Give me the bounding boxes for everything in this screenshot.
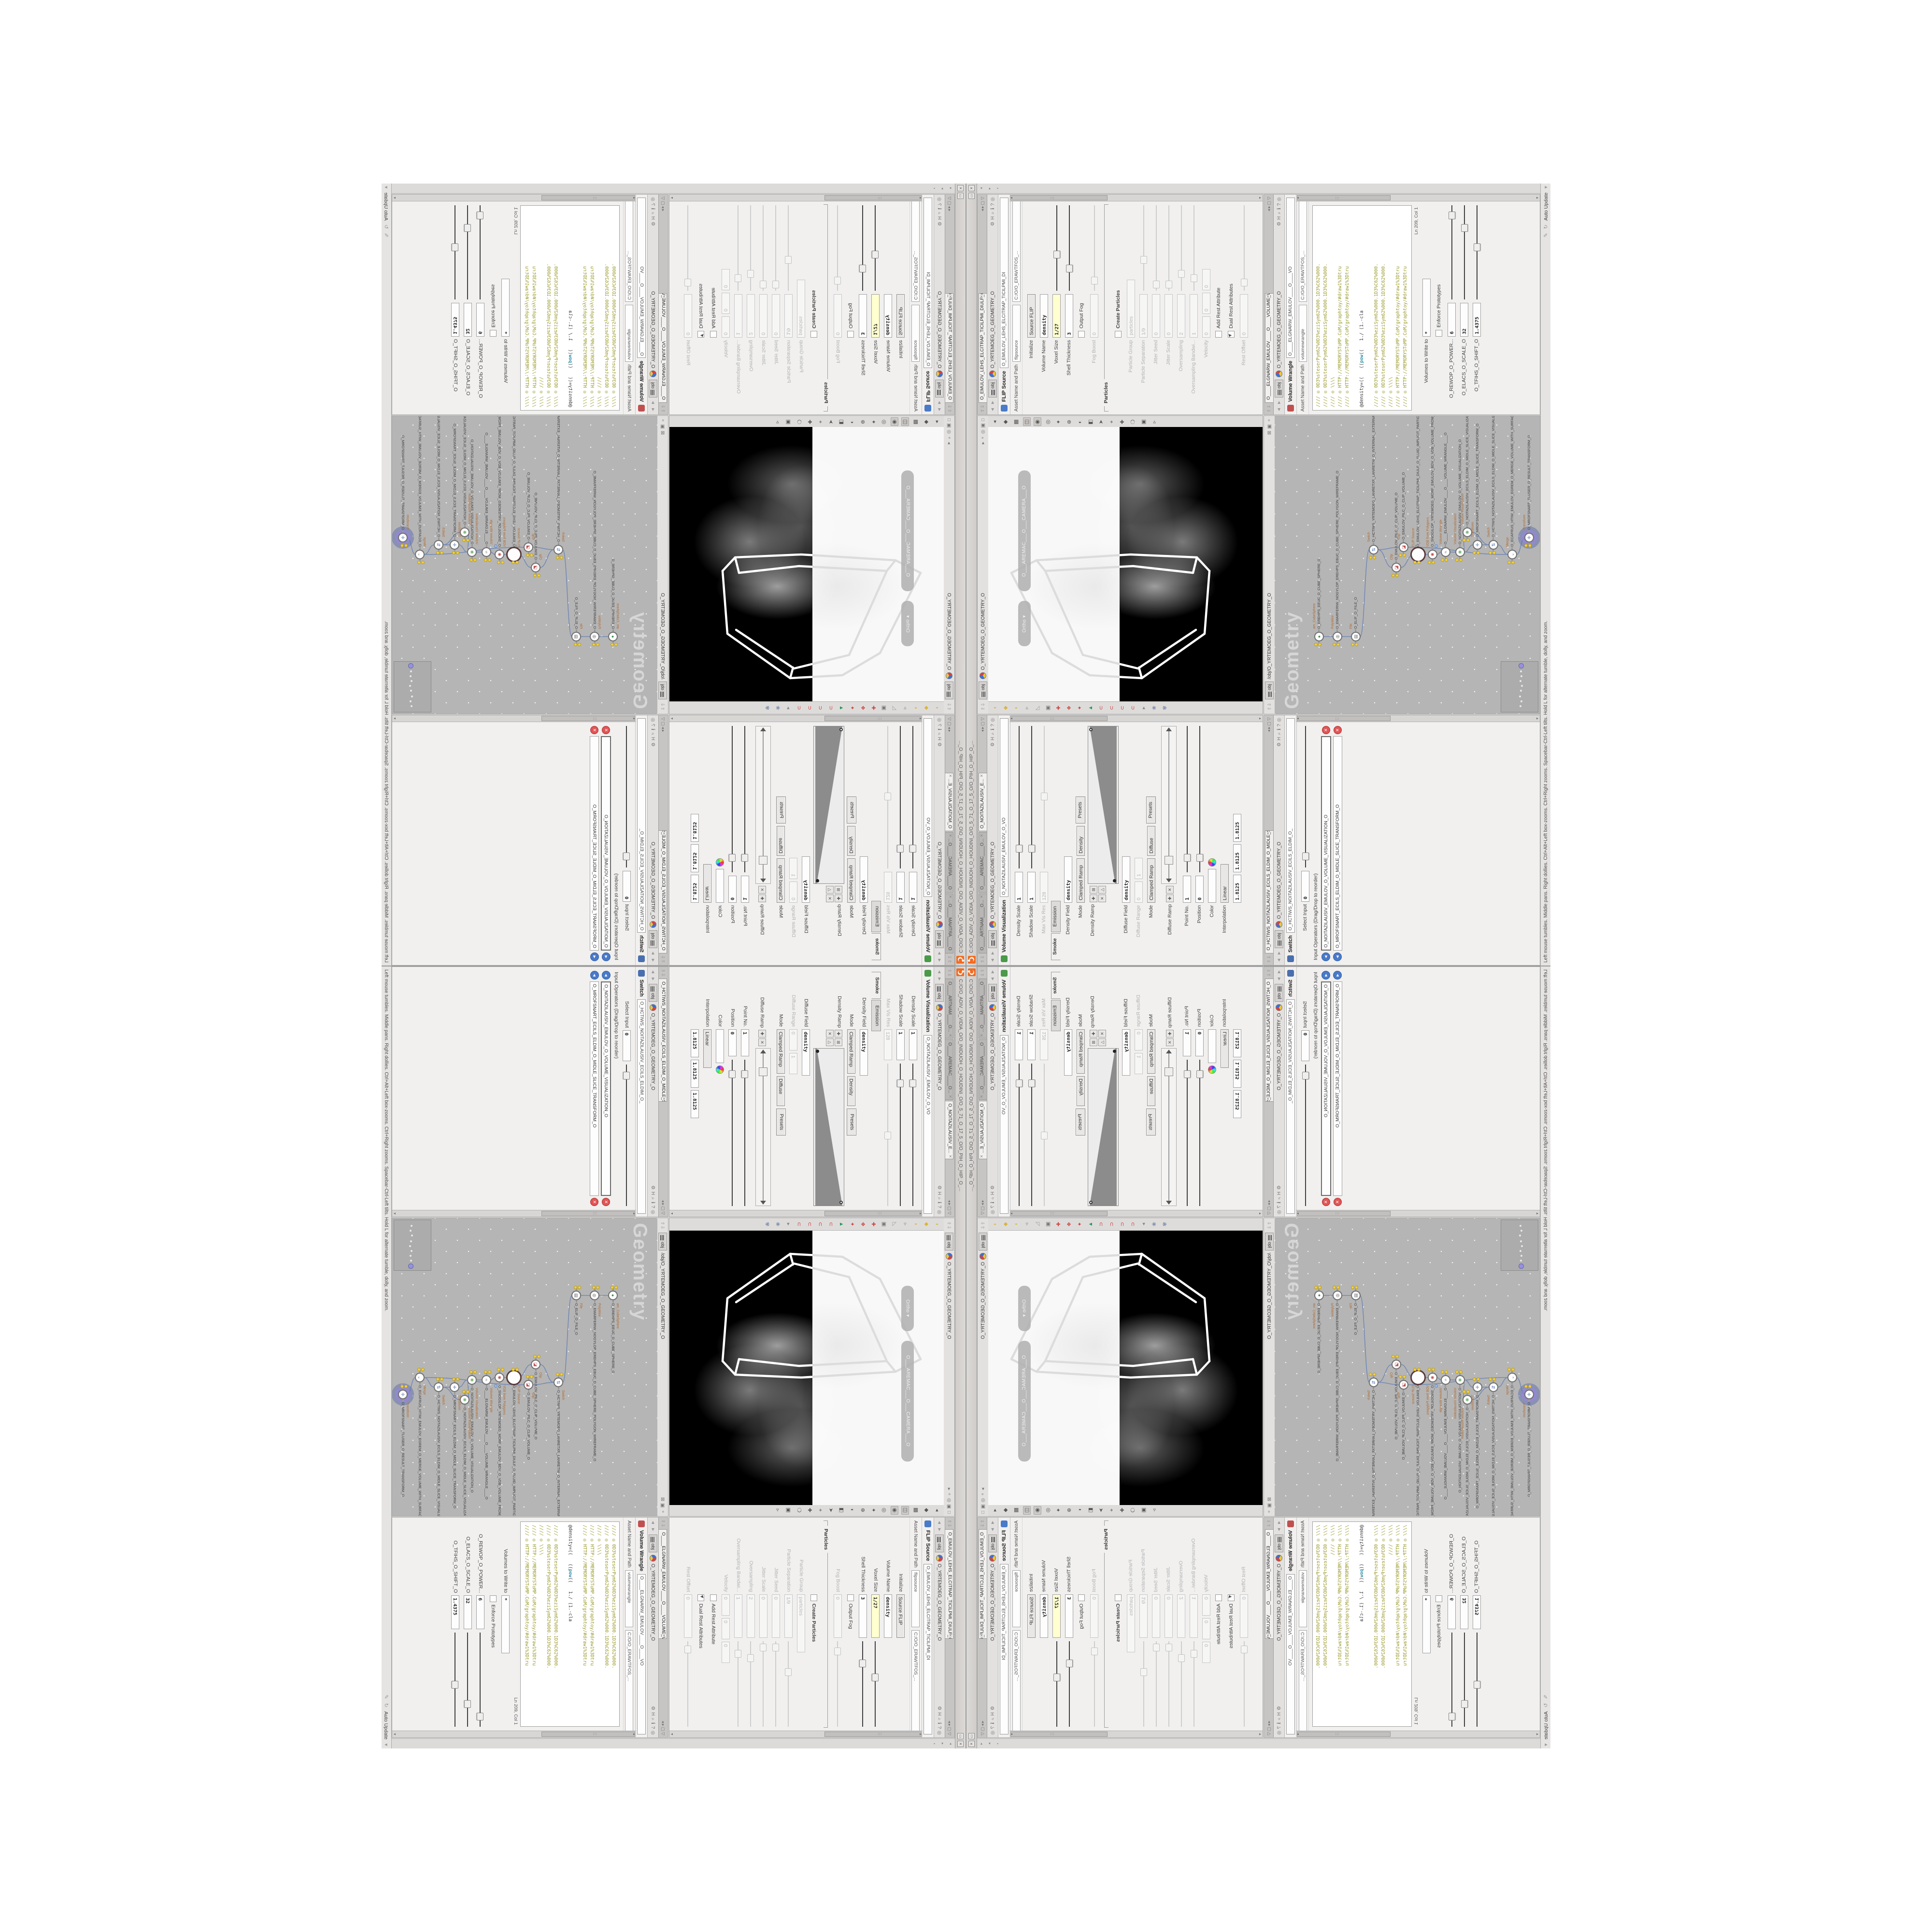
display-option-icon[interactable]: ✦ [1055, 418, 1063, 426]
param-field[interactable]: 0 [834, 1594, 842, 1638]
network-node[interactable]: ✱VDB from PolygonsO_SNOGILOP_YRTEMOEG_MO… [1428, 550, 1437, 559]
tool-icon[interactable]: ▸ [784, 704, 792, 712]
param-slider[interactable] [452, 204, 460, 300]
param-field[interactable]: 1/9 [785, 294, 793, 338]
param-field[interactable]: 1/27 [1052, 1594, 1061, 1638]
color-field[interactable] [1208, 869, 1216, 903]
network-node[interactable]: ⇅SwitchO_HCTIWS_YRTEMOEG_LANRETXE_LANRET… [1369, 545, 1378, 554]
pane-stow-arrows[interactable]: ⇧⇩ [979, 1519, 987, 1528]
param-field[interactable]: Source FLIP [1027, 1594, 1036, 1638]
viewport-header-icon[interactable]: ◎ [980, 430, 986, 434]
param-field[interactable]: Density [848, 826, 856, 856]
header-icon-⚙[interactable]: ⚙ [651, 1185, 656, 1190]
param-field[interactable]: 1/9 [785, 1594, 793, 1638]
node-name-field[interactable]: O____ELGNARW_EMULOV____O____VO [1286, 1574, 1295, 1734]
node-body[interactable]: ▤ [1351, 1291, 1361, 1300]
param-field[interactable]: density [1040, 294, 1048, 338]
param-field[interactable]: 0 [790, 1029, 798, 1051]
display-option-icon[interactable]: ◂ [991, 418, 999, 426]
pane-stow-arrows[interactable]: ⇧⇩ [1265, 404, 1273, 413]
checkbox-add-rest-attribute[interactable] [1215, 331, 1222, 338]
pane-stow-arrows[interactable]: ⇧⇩ [979, 968, 987, 978]
header-icon-?[interactable]: ? [1277, 724, 1282, 727]
node-flag-badge[interactable] [421, 561, 425, 564]
close-icon[interactable]: ✕ [1266, 832, 1270, 835]
node-name-field[interactable]: O_NOITAZILAUSIV_EMULOV_O_VO [923, 1035, 932, 1214]
viewport-path[interactable]: O_YRTEMOEG_O_GEOMETRY_O [947, 447, 952, 670]
param-field[interactable]: 0 [1202, 1642, 1210, 1663]
param-slider[interactable] [1177, 204, 1185, 292]
network-node[interactable]: ✛TransformO_MROFSNART_ECILS_ELDIM_O_MIDL… [450, 540, 459, 550]
node-body[interactable]: ◪ [1392, 1360, 1401, 1369]
view-mode-pill[interactable]: Ortho ▾ [901, 1286, 914, 1331]
header-icon-H[interactable]: H [1277, 216, 1282, 220]
node-name-field[interactable]: O_EMULOV_LEHS_ELCITRAP_TICILPMI_DI [923, 198, 932, 368]
display-option-icon[interactable]: ⌖ [1108, 418, 1116, 426]
scroll-up-icon[interactable]: ▲ [1010, 195, 1013, 201]
tool-icon[interactable]: ▹ [901, 704, 909, 712]
param-field[interactable]: 1 [897, 1029, 905, 1060]
header-icon-?[interactable]: ? [990, 1206, 995, 1208]
pane-tab[interactable]: O_EMULOV_LEHS_ELCITRAP_TICILPMI_DIULF_O_… [945, 1529, 953, 1638]
pane-control-icon[interactable]: ▽ [947, 1732, 952, 1735]
network-canvas[interactable]: Geometry●am_CubeSphereO_EREHPS_EBUC_D_CU… [392, 1218, 657, 1516]
param-slider[interactable] [1190, 1640, 1198, 1728]
pane-control-icon[interactable]: ▸ [980, 206, 985, 208]
nav-forward-icon[interactable]: ► [990, 400, 995, 405]
display-option-icon[interactable]: ◉ [891, 418, 898, 426]
display-option-icon[interactable]: ◂ [933, 1506, 941, 1515]
network-header-icon[interactable]: ▣ [1267, 1503, 1272, 1507]
node-flag-badge[interactable] [1477, 551, 1480, 554]
reorder-arrow-icon[interactable]: ◄ [602, 971, 611, 980]
slider-handle[interactable] [897, 1080, 904, 1087]
pane-tab[interactable]: O_NOITAZILAUSIV_E...✕ [979, 773, 987, 832]
viewport-header-icon[interactable]: ⚬ [980, 1492, 986, 1496]
param-field[interactable]: 1 [897, 872, 905, 903]
stow-arrow-icon[interactable]: ◂ [979, 1743, 983, 1745]
node-flag-badge[interactable] [578, 1286, 581, 1289]
ramp-button-△[interactable]: △ [826, 886, 834, 894]
param-field[interactable]: density [860, 856, 868, 903]
node-body[interactable]: ❋ [467, 547, 477, 557]
nav-back-icon[interactable]: ◄ [1277, 969, 1282, 974]
param-field[interactable]: 1.8125 [691, 814, 699, 842]
param-slider[interactable] [1460, 204, 1468, 300]
scroll-down-icon[interactable]: ▼ [393, 1210, 396, 1217]
param-field[interactable]: 1 [790, 1053, 798, 1074]
stow-arrow-icon[interactable]: ⇧ [947, 707, 952, 710]
slider-handle[interactable] [1241, 1646, 1248, 1653]
tool-icon[interactable]: ▹ [1023, 1220, 1031, 1229]
pane-control-icon[interactable]: ▸ [947, 1203, 952, 1206]
stow-arrow-icon[interactable]: ⇧ [660, 1520, 666, 1523]
header-icon-◎[interactable]: ◎ [990, 197, 995, 201]
param-field[interactable]: 1.8125 [691, 875, 699, 903]
header-icon-⌕[interactable]: ⌕ [990, 732, 995, 735]
stow-arrow-icon[interactable]: ⇧ [1267, 707, 1272, 710]
close-icon[interactable]: ✕ [980, 295, 984, 298]
ramp-handle-start[interactable] [1113, 1050, 1116, 1053]
param-field[interactable]: 128 [1040, 872, 1048, 903]
pane-control-icon[interactable]: ◂ [660, 209, 666, 212]
network-node[interactable]: ◍PolyWireO_EMARFERIW_NOGYLOP_EREHPS_EBUC… [590, 632, 599, 641]
node-body[interactable]: ⇅ [554, 1378, 563, 1387]
display-option-icon[interactable]: ⊕ [859, 1506, 867, 1515]
node-flag-badge[interactable] [1373, 556, 1376, 559]
presets-button[interactable]: Presets [847, 1108, 856, 1136]
param-field[interactable]: 1.4375 [1473, 303, 1481, 337]
node-body[interactable]: ◪ [531, 563, 540, 572]
header-icon-?[interactable]: ? [990, 724, 995, 727]
display-option-icon[interactable]: ◎ [1044, 1506, 1052, 1515]
tool-icon[interactable]: ✦ [848, 1220, 856, 1229]
close-icon[interactable]: ✕ [662, 1634, 666, 1637]
node-flag-badge[interactable] [1441, 558, 1444, 562]
pane-scrollbar[interactable]: ▲▼ [392, 1731, 636, 1737]
tool-icon[interactable]: ✾ [763, 1220, 771, 1229]
checkbox-add-rest-attribute[interactable] [710, 331, 717, 338]
stow-arrow-icon[interactable]: ⇧ [660, 959, 666, 963]
param-slider[interactable] [872, 1640, 880, 1728]
param-field[interactable]: 3 [859, 294, 867, 338]
close-icon[interactable]: ✕ [662, 295, 666, 298]
checkbox-enforce-prototypes[interactable] [1435, 1595, 1442, 1602]
node-body[interactable] [506, 547, 522, 562]
network-node[interactable]: ❋Volume VisualizationO_NOITAZILAUSIV_ECI… [1463, 1395, 1472, 1405]
pane-stow-arrows[interactable]: ⇧⇩ [980, 702, 986, 711]
viewport-header-icon[interactable]: ▸ [980, 442, 986, 444]
param-field[interactable]: Density [848, 1076, 856, 1106]
header-icon-?[interactable]: ? [990, 1726, 995, 1729]
stow-arrow-icon[interactable]: ⇧ [660, 707, 666, 710]
vex-code-editor[interactable]: //// ◎ 0D3%steserPym62%0D3%eziSym62%000.… [520, 205, 620, 411]
pane-tab[interactable]: O____AREMAC____O...✕ [979, 832, 987, 893]
node-flag-badge[interactable] [1336, 643, 1340, 646]
param-field[interactable]: 128 [884, 1029, 893, 1060]
slider-handle[interactable] [748, 270, 754, 278]
param-field[interactable]: 0 [722, 293, 730, 314]
input-operator-name[interactable]: O_MROFSNART_ECILS_ELDIM_O_MIDLE_SLICE_TR… [1333, 981, 1342, 1196]
header-icon-?[interactable]: ? [937, 724, 942, 727]
pane-control-icon[interactable]: ◂ [947, 1200, 952, 1203]
tool-icon[interactable]: ⊂ [1097, 1220, 1105, 1229]
param-slider[interactable] [1165, 1640, 1173, 1728]
param-field[interactable]: Source FLIP [1027, 294, 1036, 338]
node-flag-badge[interactable] [611, 1286, 614, 1289]
param-slider[interactable] [785, 1640, 793, 1728]
ramp-track[interactable] [1161, 726, 1177, 884]
stow-arrow-icon[interactable]: ▸ [940, 187, 945, 189]
param-field[interactable]: 0 [1240, 294, 1248, 338]
param-slider[interactable] [684, 204, 693, 292]
pane-stow-arrows[interactable]: ⇧⇩ [660, 702, 666, 711]
param-field[interactable]: Linear [704, 1029, 712, 1068]
slider-handle[interactable] [452, 243, 459, 251]
network-node[interactable]: ≈Volume WrangleO____ELGNARW_EMULOV____O_… [482, 547, 491, 557]
slider-handle[interactable] [1474, 243, 1480, 251]
display-option-icon[interactable]: ◧ [838, 1506, 845, 1515]
right-stowbar[interactable]: ◂ ▸ ▪ [392, 184, 955, 194]
tool-icon[interactable]: ⊂ [795, 704, 803, 712]
node-flag-badge[interactable] [537, 1355, 540, 1358]
node-flag-badge[interactable] [1413, 561, 1417, 564]
node-flag-badge[interactable] [1511, 1368, 1515, 1371]
tool-icon[interactable]: ⊂ [816, 1220, 824, 1229]
stow-arrow-icon[interactable]: ⇩ [1266, 1524, 1272, 1528]
header-icon-⌕[interactable]: ⌕ [937, 212, 942, 214]
slider-handle[interactable] [1178, 270, 1185, 278]
pane-tab[interactable]: O____ELGNARW_EMULOV____O____VOLUME_WRANG… [1265, 293, 1273, 402]
node-flag-badge[interactable] [421, 1368, 425, 1371]
nav-forward-icon[interactable]: ► [990, 951, 995, 955]
network-node[interactable]: FLIP SourceO_EMULOV_LEHS_ELCITRAP_TICILP… [1413, 1373, 1426, 1385]
param-field[interactable]: 0 [1240, 1594, 1248, 1638]
param-slider[interactable] [1240, 204, 1248, 292]
pane-scrollbar[interactable]: ▲▼ [1009, 195, 1263, 201]
slider-handle[interactable] [1302, 852, 1309, 860]
ramp-flag-left[interactable] [760, 1050, 766, 1053]
color-wheel-icon[interactable] [716, 858, 724, 867]
ramp-handle-end[interactable] [839, 728, 843, 731]
scroll-down-icon[interactable]: ▼ [670, 1731, 673, 1737]
param-field[interactable]: 1 [790, 858, 798, 879]
header-icon-◎[interactable]: ◎ [990, 1731, 995, 1735]
network-chip[interactable]: obj [1265, 682, 1274, 699]
network-node[interactable]: ⇅SwitchO_HCTIWS_NOITAZILAUSIV_ECILS_ELDI… [434, 1382, 443, 1392]
refresh-icon[interactable]: ↻ [1543, 225, 1549, 229]
header-icon-ℹ[interactable]: ℹ [651, 1722, 656, 1724]
header-icon-⌕[interactable]: ⌕ [651, 1197, 656, 1200]
param-field[interactable]: density [1064, 856, 1072, 903]
viewport-header-icon[interactable]: ⚬ [980, 436, 986, 440]
display-option-icon[interactable]: ◆ [923, 1506, 930, 1515]
stow-arrow-icon[interactable]: ⇩ [1266, 973, 1272, 977]
scroll-up-icon[interactable]: ▲ [1010, 715, 1013, 722]
folder-tab-smoke[interactable]: Smoke [1051, 972, 1061, 999]
param-field[interactable]: 0 [722, 1618, 730, 1639]
param-field[interactable]: 0 [1165, 294, 1173, 338]
tool-icon[interactable]: ◆ [923, 1220, 930, 1229]
slider-handle[interactable] [1461, 224, 1468, 232]
param-slider[interactable] [897, 725, 905, 869]
stow-arrow-icon[interactable]: ⇧ [947, 959, 952, 963]
param-slider[interactable] [1027, 725, 1036, 869]
scroll-up-icon[interactable]: ▲ [632, 195, 636, 201]
pane-control-icon[interactable]: ▽ [1266, 1732, 1272, 1735]
ramp-gradient[interactable] [813, 1048, 844, 1206]
node-body[interactable]: ❋ [1455, 1375, 1465, 1385]
node-flag-badge[interactable] [404, 1385, 408, 1388]
nav-back-icon[interactable]: ◄ [1277, 407, 1282, 412]
node-flag-badge[interactable] [1369, 556, 1372, 559]
ramp-button-✕[interactable]: ✕ [826, 895, 834, 902]
network-node[interactable]: ▤FileO_ELIF_O_FILE_O [1351, 1291, 1361, 1300]
header-icon-⌕[interactable]: ⌕ [651, 1718, 656, 1720]
header-icon-⚙[interactable]: ⚙ [651, 222, 656, 226]
slider-handle[interactable] [1184, 854, 1191, 862]
close-icon[interactable]: ✕ [980, 895, 984, 898]
pane-control-icon[interactable]: ▽ [980, 1211, 985, 1215]
close-icon[interactable]: ✕ [948, 1095, 952, 1098]
slider-handle[interactable] [835, 277, 841, 284]
node-flag-badge[interactable] [1507, 561, 1511, 564]
header-icon-◎[interactable]: ◎ [651, 718, 656, 722]
pane-control-icon[interactable]: ▢ [947, 201, 952, 205]
asset-path-field[interactable]: C:/O/O_ERAWTFOS_... [1012, 198, 1021, 302]
node-body[interactable]: ✛ [1524, 1390, 1534, 1399]
stow-arrow-icon[interactable]: ⇩ [980, 973, 985, 977]
param-field[interactable]: 0 [760, 294, 768, 338]
stow-arrow-icon[interactable]: ⇩ [660, 703, 666, 707]
nav-forward-icon[interactable]: ► [651, 400, 656, 405]
display-option-icon[interactable]: ◐ [1076, 418, 1084, 426]
ramp-flag-right[interactable] [760, 727, 766, 731]
network-chip[interactable]: obj [649, 1534, 657, 1552]
presets-button[interactable]: Presets [1146, 1108, 1156, 1136]
node-flag-badge[interactable] [1466, 1390, 1470, 1393]
ramp-button-⊞[interactable]: ⊞ [1090, 1038, 1097, 1046]
param-slider[interactable] [1139, 1640, 1148, 1728]
display-option-icon[interactable]: ⌖ [1108, 1506, 1116, 1515]
node-flag-badge[interactable] [1369, 1373, 1372, 1376]
node-body[interactable]: ◪ [524, 1380, 533, 1390]
stow-arrow-icon[interactable]: ⇧ [1266, 409, 1272, 412]
network-header-icon[interactable]: ⚬ [1267, 418, 1272, 422]
input-operator-name[interactable]: O_MROFSNART_ECILS_ELDIM_O_MIDLE_SLICE_TR… [590, 736, 599, 951]
viewport-header-icon[interactable]: ◎ [980, 1498, 986, 1503]
network-node[interactable]: ●am_CubeSphereO_EREHPS_EBUC_D_CUBE_SPHER… [1314, 1291, 1324, 1300]
network-canvas[interactable]: Geometry●am_CubeSphereO_EREHPS_EBUC_D_CU… [392, 416, 657, 714]
slider-handle[interactable] [1241, 279, 1248, 286]
header-icon-H[interactable]: H [990, 1712, 995, 1716]
param-slider[interactable] [772, 1640, 781, 1728]
brush-icon[interactable]: ✎ [1543, 233, 1549, 237]
header-icon-H[interactable]: H [1277, 737, 1282, 740]
tool-icon[interactable]: ⊂ [1129, 1220, 1137, 1229]
node-flag-badge[interactable] [511, 1368, 515, 1371]
slider-handle[interactable] [729, 854, 736, 862]
close-icon[interactable]: ✕ [948, 1634, 952, 1637]
header-icon-⚙[interactable]: ⚙ [937, 742, 942, 747]
ramp-handle-end[interactable] [1089, 1201, 1093, 1204]
param-field[interactable]: 32 [464, 1595, 472, 1629]
slider-handle[interactable] [835, 1648, 841, 1655]
param-field[interactable]: 1 [1015, 872, 1023, 903]
pane-tab[interactable]: O_HCTIWS_NOITAZILAUSIV_ECILS_ELDIM_O_MID… [659, 979, 667, 1102]
param-group-label[interactable]: Particles [1101, 1520, 1111, 1728]
asset-path-field[interactable]: C:/O/O_ERAWTFOS_... [1299, 198, 1307, 302]
ramp-button-△[interactable]: △ [826, 1038, 834, 1046]
close-icon[interactable]: ✕ [948, 1155, 952, 1158]
param-field[interactable]: 1/9 [1139, 1594, 1148, 1638]
display-option-icon[interactable]: ▣ [784, 1506, 792, 1515]
refresh-icon[interactable]: ↻ [383, 225, 389, 229]
folder-tab-emission[interactable]: Emission [871, 901, 881, 932]
close-icon[interactable]: ✕ [980, 1155, 984, 1158]
node-body[interactable]: ✛ [398, 533, 408, 542]
param-slider[interactable] [1195, 725, 1204, 873]
network-node[interactable]: ❋Volume VisualizationO_NOITAZILAUSIV_EMU… [1455, 547, 1465, 557]
param-field[interactable]: density [802, 1029, 810, 1076]
param-field[interactable]: * [1422, 1595, 1431, 1653]
network-chip[interactable]: obj [1275, 1534, 1283, 1552]
checkbox-dual-rest-attributes[interactable] [697, 1594, 704, 1601]
pane-stow-arrows[interactable]: ⇧⇩ [659, 968, 667, 978]
header-icon-ℹ[interactable]: ℹ [1277, 208, 1282, 210]
param-slider[interactable] [785, 204, 793, 292]
pane-control-icon[interactable]: ▢ [660, 1207, 666, 1211]
scrollbar-thumb[interactable] [541, 195, 635, 200]
node-flag-badge[interactable] [1477, 1378, 1480, 1381]
tool-icon[interactable]: ⊂ [806, 704, 813, 712]
node-body[interactable]: ✱ [1428, 1373, 1437, 1382]
ramp-handle[interactable] [1165, 856, 1173, 865]
header-icon-⌕[interactable]: ⌕ [651, 212, 656, 214]
param-field[interactable]: 2 [747, 1594, 755, 1638]
camera-menu-pill[interactable]: O___AREMAC___O___CAMERA___O [901, 470, 914, 591]
pane-control-icon[interactable]: ▸ [980, 1724, 985, 1726]
network-node[interactable]: ◍PolyWireO_EMARFERIW_NOGYLOP_EREHPS_EBUC… [1333, 1291, 1342, 1300]
node-flag-badge[interactable] [1395, 1355, 1399, 1358]
node-flag-badge[interactable] [1492, 1378, 1496, 1381]
scrollbar-thumb[interactable] [1297, 1732, 1391, 1737]
display-option-icon[interactable]: ◎ [1044, 418, 1052, 426]
pane-control-icon[interactable]: ▸ [660, 206, 666, 208]
scrollbar-thumb[interactable] [1297, 1211, 1391, 1216]
ramp-track[interactable] [1161, 1048, 1177, 1206]
scroll-up-icon[interactable]: ▲ [919, 1731, 922, 1737]
param-field[interactable]: 0 [790, 881, 798, 903]
param-field[interactable]: particles [1127, 280, 1135, 338]
stow-arrow-icon[interactable]: ⇧ [1266, 969, 1272, 973]
param-slider[interactable] [1065, 1640, 1073, 1728]
param-field[interactable]: 1 [1183, 1029, 1191, 1056]
checkbox-enforce-prototypes[interactable] [490, 330, 497, 337]
network-chip[interactable]: obj [945, 1233, 953, 1250]
display-option-icon[interactable]: ◉ [891, 1506, 898, 1515]
pane-tab[interactable]: O____AREMAC____O...✕ [945, 832, 953, 893]
stow-arrow-icon[interactable]: ⇩ [980, 1226, 986, 1230]
header-icon-⚙[interactable]: ⚙ [1277, 222, 1282, 226]
param-field[interactable]: 0 [684, 294, 693, 338]
node-flag-badge[interactable] [560, 1373, 563, 1376]
header-icon-H[interactable]: H [651, 216, 656, 220]
nav-forward-icon[interactable]: ► [990, 1527, 995, 1532]
node-path[interactable]: O_YRTEMOEG_O_GEOMETRY_O [937, 749, 942, 919]
scroll-up-icon[interactable]: ▲ [919, 195, 922, 201]
node-flag-badge[interactable] [462, 1390, 466, 1393]
param-field[interactable]: 1/27 [872, 1594, 880, 1638]
header-icon-ℹ[interactable]: ℹ [651, 208, 656, 210]
header-icon-ℹ[interactable]: ℹ [937, 728, 942, 730]
stow-arrow-icon[interactable]: ⇧ [980, 409, 985, 412]
reorder-arrow-icon[interactable]: ◄ [590, 952, 599, 961]
color-field[interactable] [716, 869, 724, 903]
ramp-button-✚[interactable]: ✚ [1090, 1030, 1097, 1037]
param-field[interactable]: 1 [1027, 1029, 1036, 1060]
param-slider[interactable] [729, 1059, 737, 1207]
scroll-down-icon[interactable]: ▼ [1259, 1731, 1262, 1737]
pane-tab[interactable]: O_NOITAZILAUSIV_E...✕ [945, 1101, 953, 1160]
display-option-icon[interactable]: ✚ [806, 418, 813, 426]
tool-icon[interactable]: ⊂ [1129, 704, 1137, 712]
slider-handle[interactable] [1191, 274, 1197, 282]
network-node[interactable]: ✛TransformO_MROFSNART_TLUSER_O_RESULT_TR… [398, 533, 408, 542]
slider-handle[interactable] [1016, 845, 1023, 852]
param-field[interactable]: 0 [1195, 1029, 1204, 1056]
network-header-icon[interactable]: ⊠ [660, 1497, 666, 1501]
